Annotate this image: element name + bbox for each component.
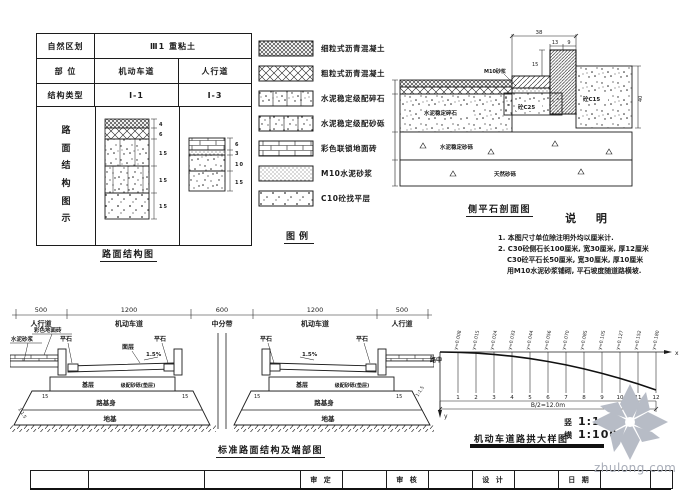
structure-stack-motor: 4 6 15 15 15 — [103, 115, 173, 227]
station-number: 6 — [546, 395, 550, 401]
sheet-bottom-border — [30, 488, 671, 490]
stack1-dim: 15 — [159, 151, 168, 157]
legend-item: 水泥稳定级配砂砾 — [258, 115, 385, 132]
zone-sidewalk: 人行道 — [392, 319, 413, 328]
approved-label: 审 定 — [301, 471, 343, 488]
mortar-label: 水泥砂浆 — [11, 335, 34, 343]
note-line: 用M10水泥砂浆铺砌, 平石坡度随道路横坡. — [498, 266, 682, 277]
y-value-label: y=0.056 — [543, 330, 553, 351]
type-value-2: Ⅰ-3 — [179, 84, 251, 106]
title-underline-bar — [470, 444, 604, 448]
diagram-row-label: 路面结构图示 — [61, 123, 71, 228]
legend-label: 彩色联锁地面砖 — [321, 143, 377, 154]
subbase-label: 水泥稳定砂砾 — [440, 143, 474, 151]
station-number: 8 — [582, 395, 586, 401]
brick-swatch — [258, 140, 314, 157]
axis-x-label: x — [675, 350, 679, 357]
dim-1200: 1200 — [307, 306, 324, 314]
edge-dim: 15 — [254, 394, 260, 400]
y-value-label: y=0.044 — [525, 330, 535, 351]
part-label: 部 位 — [37, 59, 95, 83]
y-value-label: y=0.105 — [597, 330, 607, 351]
axis-y-label: y — [444, 413, 448, 420]
span-dim: B/2=12.0m — [531, 402, 565, 409]
flat-stone-label: 平石 — [154, 336, 166, 343]
dim-38: 38 — [536, 30, 543, 36]
y-value-label: y=0.015 — [471, 330, 481, 351]
legend-item: M10水泥砂浆 — [258, 165, 385, 182]
y-value-label: y=0.070 — [561, 330, 571, 351]
title-block-cell — [343, 471, 387, 488]
pavement-structure-table: 自然区划 Ⅲ1 重粘土 部 位 机动车道 人行道 结构类型 Ⅰ-1 Ⅰ-3 路面… — [36, 33, 252, 246]
dim-500: 500 — [396, 306, 408, 314]
note-line: C30砼平石长50厘米, 宽30厘米, 厚10厘米 — [498, 255, 682, 266]
legend: 细粒式沥青混凝土 粗粒式沥青混凝土 水泥稳定级配碎石 水泥稳定级配砂砾 彩色联锁… — [258, 40, 385, 215]
dim-15: 15 — [532, 62, 538, 68]
legend-item: 彩色联锁地面砖 — [258, 140, 385, 157]
dim-13: 13 — [552, 40, 558, 46]
title-block-cell — [429, 471, 473, 488]
zone-motor-lane: 机动车道 — [301, 319, 329, 328]
cross-section-drawing: 500 1200 600 1200 500 人行道 机动车道 中分带 机动车道 … — [10, 303, 434, 445]
legend-label: 水泥稳定级配砂砾 — [321, 118, 385, 129]
legend-label: 粗粒式沥青混凝土 — [321, 68, 385, 79]
station-number: 5 — [528, 395, 532, 401]
embankment-label: 路基身 — [96, 398, 116, 407]
foundation-label: 地基 — [322, 414, 336, 423]
watermark-text: zhulong.com — [594, 461, 676, 475]
structure-stack-motor-cell: 4 6 15 15 15 — [96, 107, 180, 245]
note-line: 1. 本图尺寸单位除注明外均以厘米计. — [498, 233, 682, 244]
stack1-dim: 6 — [159, 132, 163, 138]
brick-label: 彩色地面砖 — [33, 326, 62, 334]
stack1-dim: 15 — [159, 204, 168, 210]
stack2-dim: 3 — [235, 151, 239, 157]
concrete-swatch — [258, 190, 314, 207]
edge-dim: 15 — [42, 394, 48, 400]
cushion-label: 级配砂砾(垫层) — [120, 382, 156, 389]
drawing-sheet: 自然区划 Ⅲ1 重粘土 部 位 机动车道 人行道 结构类型 Ⅰ-1 Ⅰ-3 路面… — [0, 0, 683, 500]
type-value-1: Ⅰ-1 — [95, 84, 179, 106]
designed-label: 设 计 — [473, 471, 515, 488]
stack1-dim: 4 — [159, 122, 163, 128]
mortar-label: M10砂浆 — [484, 68, 507, 75]
structure-stack-sidewalk: 6 3 10 15 — [187, 135, 245, 205]
dim-9: 9 — [567, 40, 570, 46]
stack2-dim: 10 — [235, 162, 244, 168]
note-line: 2. C30砼侧石长100厘米, 宽30厘米, 厚12厘米 — [498, 244, 682, 255]
base-layer-label: 水泥稳定碎石 — [424, 109, 458, 117]
y-value-label: y=0.033 — [507, 330, 517, 351]
y-value-label: y=0.024 — [489, 330, 499, 351]
dim-500: 500 — [35, 306, 47, 314]
slope-label: 1.5% — [146, 352, 162, 358]
foundation-label: 地基 — [104, 414, 118, 423]
title-block-cell — [515, 471, 559, 488]
part-sidewalk: 人行道 — [179, 59, 251, 83]
base-label: 基层 — [81, 381, 94, 389]
station-number: 3 — [492, 395, 496, 401]
edge-dim: 15 — [396, 394, 402, 400]
structure-stack-sidewalk-cell: 6 3 10 15 — [180, 107, 251, 245]
legend-item: 细粒式沥青混凝土 — [258, 40, 385, 57]
title-block-cell — [31, 471, 89, 488]
legend-label: 细粒式沥青混凝土 — [321, 43, 385, 54]
legend-label: M10水泥砂浆 — [321, 168, 372, 179]
flat-stone-label: 平石 — [356, 336, 368, 343]
title-block: 审 定 审 核 设 计 日 期 — [30, 470, 673, 489]
flat-stone-label: 平石 — [60, 336, 72, 343]
y-value-label: y=0.180 — [651, 330, 661, 351]
crushed-stone-swatch — [258, 90, 314, 107]
natural-gravel-label: 天然砂砾 — [494, 170, 517, 178]
y-value-label: y=0.008 — [453, 330, 463, 351]
dim-600: 600 — [216, 306, 228, 314]
zone-median: 中分带 — [212, 319, 233, 328]
dim-40: 40 — [638, 96, 642, 102]
legend-item: 粗粒式沥青混凝土 — [258, 65, 385, 82]
diagram-row-label-cell: 路面结构图示 — [37, 107, 96, 245]
station-number: 4 — [510, 395, 514, 401]
cushion-label: 级配砂砾(垫层) — [334, 382, 370, 389]
station-number: 7 — [564, 395, 568, 401]
stack1-dim: 15 — [159, 178, 168, 184]
c15-concrete-label: 砼C15 — [582, 95, 600, 103]
station-number: 1 — [456, 395, 460, 401]
horizontal-scale-label: 横 — [564, 431, 572, 440]
y-value-label: y=0.152 — [633, 330, 643, 351]
cross-section-title: 标准路面结构及端部图 — [216, 443, 325, 458]
legend-label: C10砼找平层 — [321, 193, 370, 204]
flat-stone-label: 平石 — [260, 336, 272, 343]
dim-1200: 1200 — [121, 306, 138, 314]
title-block-cell — [205, 471, 301, 488]
legend-title: 图例 — [284, 229, 314, 244]
zhulong-logo-icon — [588, 380, 672, 464]
notes-title: 说 明 — [498, 210, 682, 226]
stack2-dim: 15 — [235, 180, 244, 186]
base-label: 基层 — [295, 381, 308, 389]
y-value-label: y=0.085 — [579, 330, 589, 351]
type-label: 结构类型 — [37, 84, 95, 106]
legend-item: C10砼找平层 — [258, 190, 385, 207]
fine-asphalt-swatch — [258, 40, 314, 57]
surface-label: 面层 — [122, 343, 134, 351]
gravel-swatch — [258, 115, 314, 132]
legend-label: 水泥稳定级配碎石 — [321, 93, 385, 104]
curb-detail-drawing: 水泥稳定碎石 砼C25 M10砂浆 砼C15 水泥稳定砂砾 天然砂砾 38 13… — [392, 24, 642, 200]
zone-motor-lane: 机动车道 — [115, 319, 143, 328]
vertical-scale-label: 竖 — [564, 418, 572, 427]
region-label: 自然区划 — [37, 34, 95, 58]
station-number: 2 — [474, 395, 478, 401]
table-title: 路面结构图 — [100, 247, 157, 262]
legend-item: 水泥稳定级配碎石 — [258, 90, 385, 107]
coarse-asphalt-swatch — [258, 65, 314, 82]
region-value: Ⅲ1 重粘土 — [95, 34, 251, 58]
zone-sidewalk: 人行道 — [31, 319, 52, 328]
notes-block: 说 明 1. 本图尺寸单位除注明外均以厘米计. 2. C30砼侧石长100厘米,… — [498, 210, 682, 277]
c25-concrete-label: 砼C25 — [517, 103, 535, 111]
mortar-swatch — [258, 165, 314, 182]
side-slope-label: 1:1.5 — [415, 385, 426, 398]
y-value-label: y=0.127 — [615, 330, 625, 351]
edge-dim: 15 — [182, 394, 188, 400]
embankment-label: 路基身 — [314, 398, 334, 407]
checked-label: 审 核 — [387, 471, 429, 488]
slope-label: 1.5% — [302, 352, 318, 358]
part-motor-lane: 机动车道 — [95, 59, 179, 83]
stack2-dim: 6 — [235, 142, 239, 148]
title-block-cell — [89, 471, 205, 488]
